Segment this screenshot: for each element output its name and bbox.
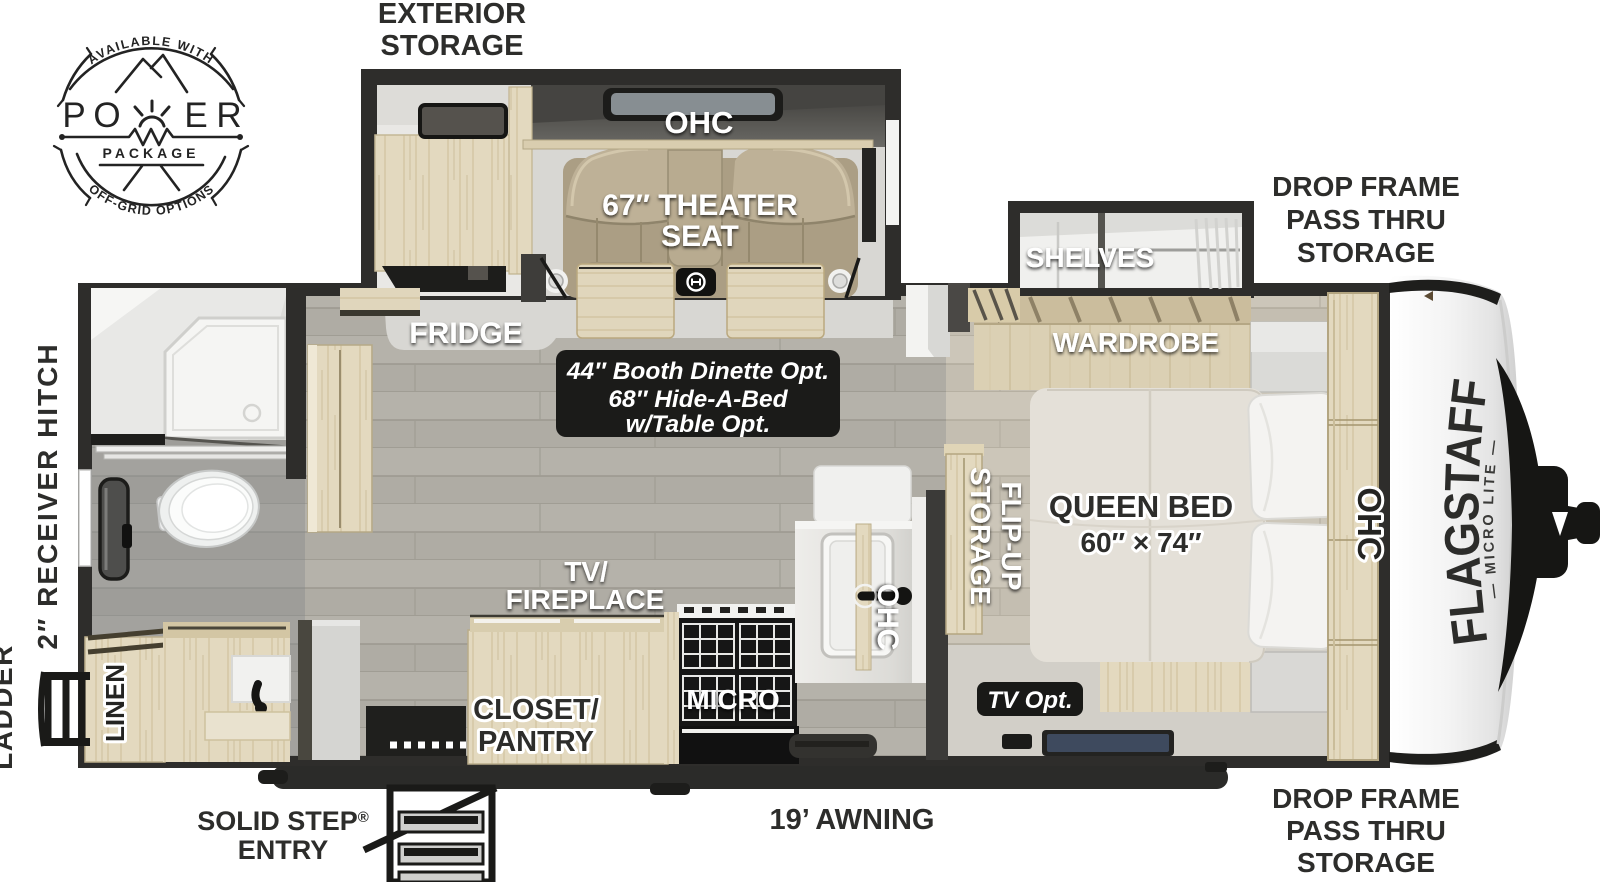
- svg-text:LADDER: LADDER: [0, 644, 18, 770]
- svg-text:67″ THEATER: 67″ THEATER: [602, 189, 798, 222]
- svg-text:OHC: OHC: [665, 105, 734, 140]
- svg-text:LINEN: LINEN: [100, 664, 130, 742]
- svg-text:DROP FRAME: DROP FRAME: [1272, 171, 1460, 202]
- svg-text:2″ RECEIVER HITCH: 2″ RECEIVER HITCH: [32, 342, 63, 649]
- svg-text:WARDROBE: WARDROBE: [1053, 327, 1219, 358]
- svg-text:DROP FRAME: DROP FRAME: [1272, 783, 1460, 814]
- svg-text:SHELVES: SHELVES: [1026, 242, 1155, 273]
- svg-text:w/Table Opt.: w/Table Opt.: [626, 411, 771, 438]
- svg-text:PASS THRU: PASS THRU: [1286, 204, 1446, 235]
- svg-text:44″ Booth Dinette Opt.: 44″ Booth Dinette Opt.: [566, 358, 829, 385]
- svg-text:FRIDGE: FRIDGE: [409, 317, 522, 350]
- svg-text:68″ Hide-A-Bed: 68″ Hide-A-Bed: [608, 386, 788, 413]
- svg-text:EXTERIOR: EXTERIOR: [378, 0, 526, 30]
- svg-text:STORAGE: STORAGE: [1297, 847, 1435, 878]
- svg-text:SEAT: SEAT: [661, 220, 739, 253]
- svg-text:PANTRY: PANTRY: [478, 726, 594, 758]
- svg-text:CLOSET/: CLOSET/: [473, 694, 599, 726]
- svg-text:OHC: OHC: [1351, 487, 1388, 560]
- svg-text:FIREPLACE: FIREPLACE: [506, 584, 665, 615]
- svg-text:R: R: [216, 96, 241, 135]
- svg-text:QUEEN BED: QUEEN BED: [1049, 489, 1233, 524]
- svg-text:60″ × 74″: 60″ × 74″: [1080, 527, 1201, 558]
- svg-text:PASS THRU: PASS THRU: [1286, 815, 1446, 846]
- svg-text:E: E: [184, 96, 207, 135]
- svg-text:STORAGE: STORAGE: [381, 30, 524, 62]
- svg-text:P: P: [62, 96, 85, 135]
- svg-text:O: O: [93, 96, 120, 135]
- svg-text:STORAGE: STORAGE: [1297, 237, 1435, 268]
- svg-text:FLIP-UP: FLIP-UP: [996, 482, 1027, 591]
- svg-text:ENTRY: ENTRY: [238, 835, 329, 865]
- svg-text:SOLID STEP®: SOLID STEP®: [197, 806, 369, 836]
- svg-text:MICRO: MICRO: [686, 684, 779, 715]
- svg-text:TV Opt.: TV Opt.: [987, 687, 1072, 714]
- svg-text:TV/: TV/: [564, 556, 608, 587]
- svg-text:PACKAGE: PACKAGE: [103, 145, 200, 161]
- svg-text:OHC: OHC: [871, 584, 904, 651]
- svg-text:19’ AWNING: 19’ AWNING: [770, 804, 935, 836]
- svg-text:STORAGE: STORAGE: [965, 467, 996, 605]
